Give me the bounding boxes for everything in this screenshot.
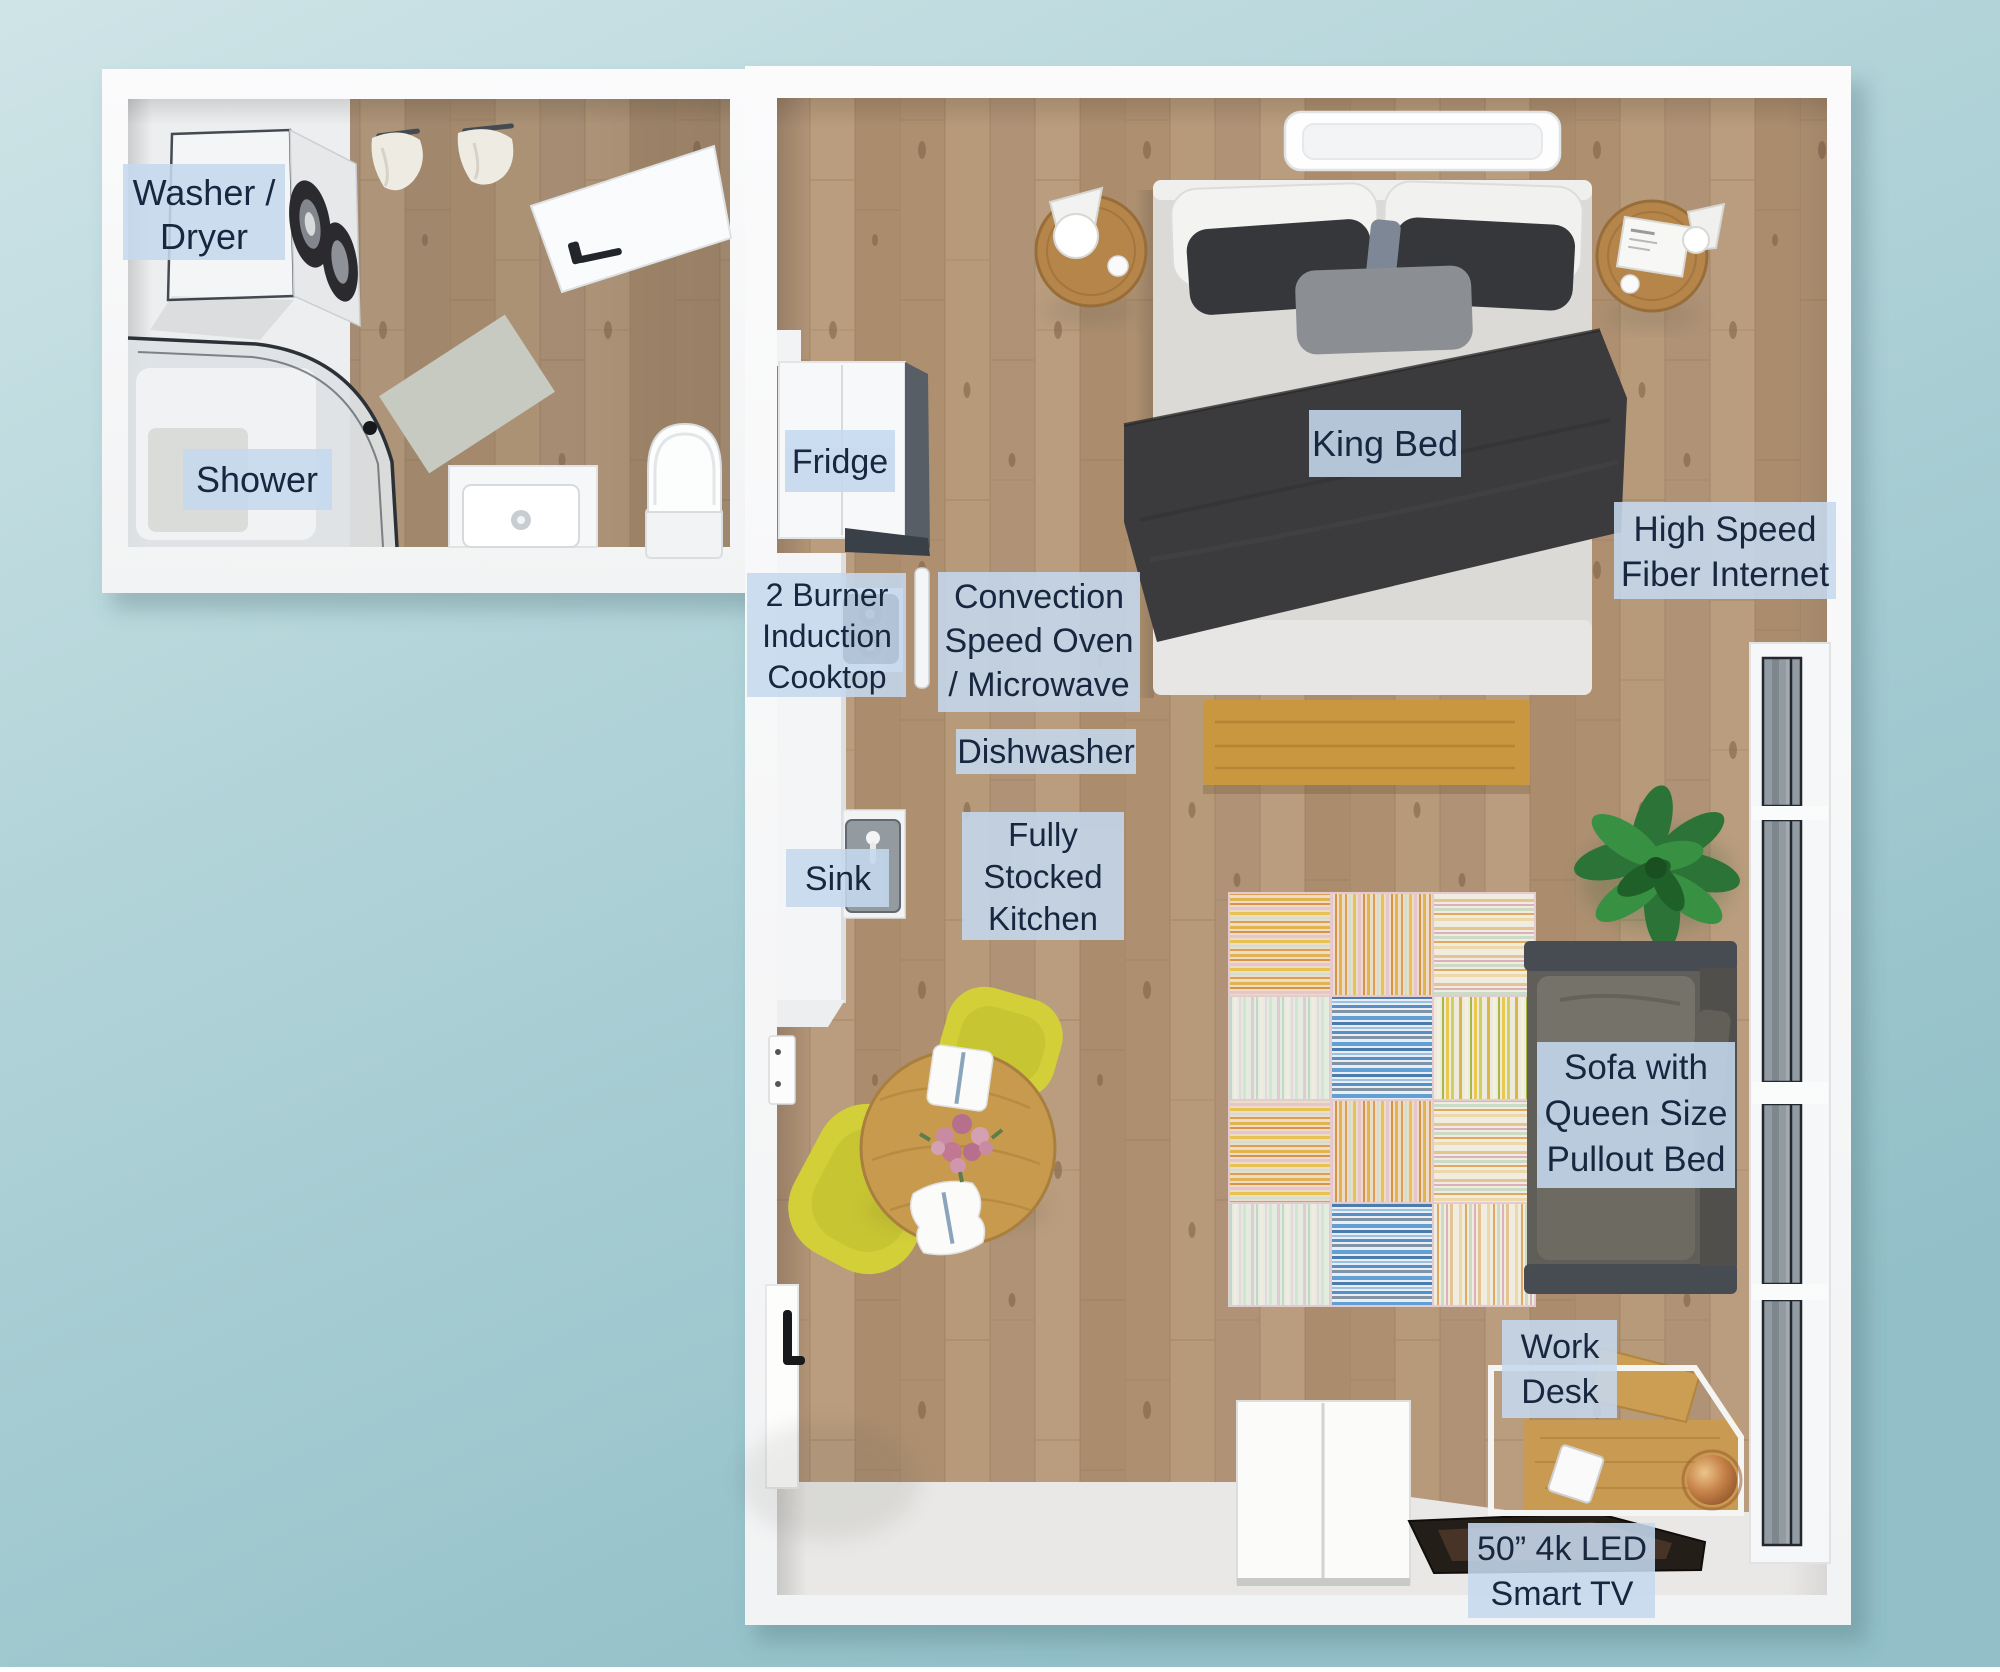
svg-text:Convection: Convection bbox=[954, 578, 1124, 616]
svg-text:Dryer: Dryer bbox=[160, 216, 248, 257]
svg-text:Queen Size: Queen Size bbox=[1545, 1094, 1728, 1133]
svg-text:Washer /: Washer / bbox=[133, 172, 276, 213]
svg-text:King Bed: King Bed bbox=[1312, 423, 1458, 464]
svg-text:2 Burner: 2 Burner bbox=[766, 577, 889, 613]
svg-text:Kitchen: Kitchen bbox=[988, 900, 1098, 937]
svg-text:Induction: Induction bbox=[762, 618, 892, 654]
svg-text:/ Microwave: / Microwave bbox=[948, 666, 1129, 704]
svg-text:Fridge: Fridge bbox=[792, 443, 888, 481]
svg-text:High Speed: High Speed bbox=[1634, 510, 1817, 549]
svg-text:Fully: Fully bbox=[1008, 816, 1078, 853]
svg-text:50” 4k LED: 50” 4k LED bbox=[1477, 1530, 1647, 1568]
svg-text:Dishwasher: Dishwasher bbox=[957, 733, 1135, 771]
svg-text:Fiber Internet: Fiber Internet bbox=[1621, 555, 1829, 594]
svg-text:Speed Oven: Speed Oven bbox=[944, 622, 1133, 660]
svg-text:Stocked: Stocked bbox=[983, 858, 1102, 895]
svg-text:Desk: Desk bbox=[1521, 1373, 1599, 1411]
svg-text:Sink: Sink bbox=[805, 860, 872, 898]
svg-text:Shower: Shower bbox=[196, 459, 318, 500]
svg-text:Pullout Bed: Pullout Bed bbox=[1546, 1140, 1725, 1179]
svg-text:Work: Work bbox=[1521, 1328, 1601, 1366]
svg-text:Cooktop: Cooktop bbox=[767, 659, 886, 695]
svg-text:Sofa with: Sofa with bbox=[1564, 1048, 1708, 1087]
svg-text:Smart TV: Smart TV bbox=[1491, 1575, 1634, 1613]
